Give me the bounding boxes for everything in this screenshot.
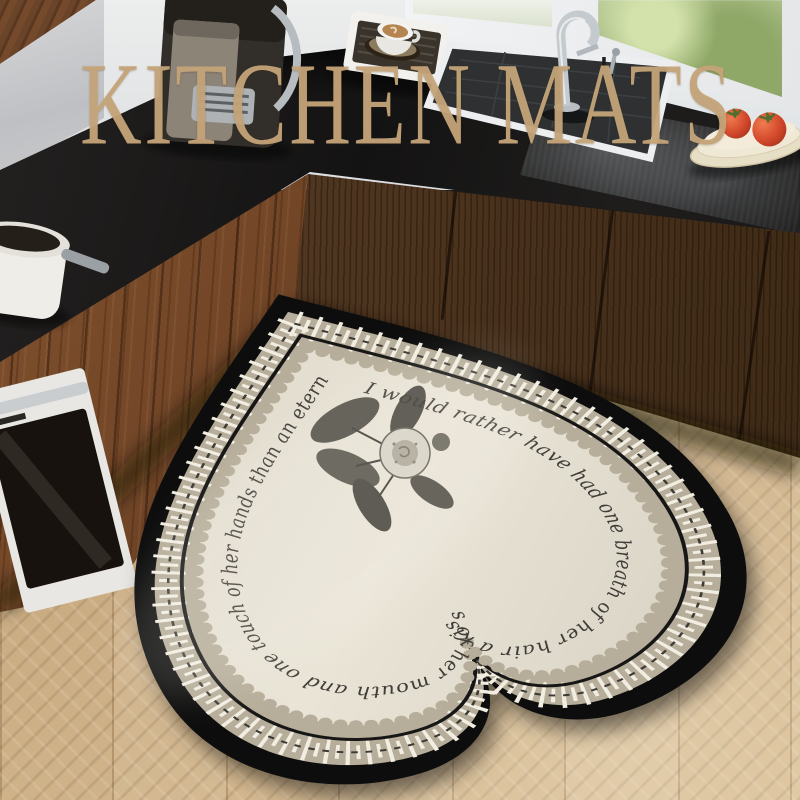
- pan-handle: [60, 247, 111, 274]
- kitchen-scene: I would rather have had one breath of he…: [0, 0, 800, 800]
- page-title: KITCHEN MATS: [80, 38, 720, 173]
- white-saucepan: [0, 215, 115, 338]
